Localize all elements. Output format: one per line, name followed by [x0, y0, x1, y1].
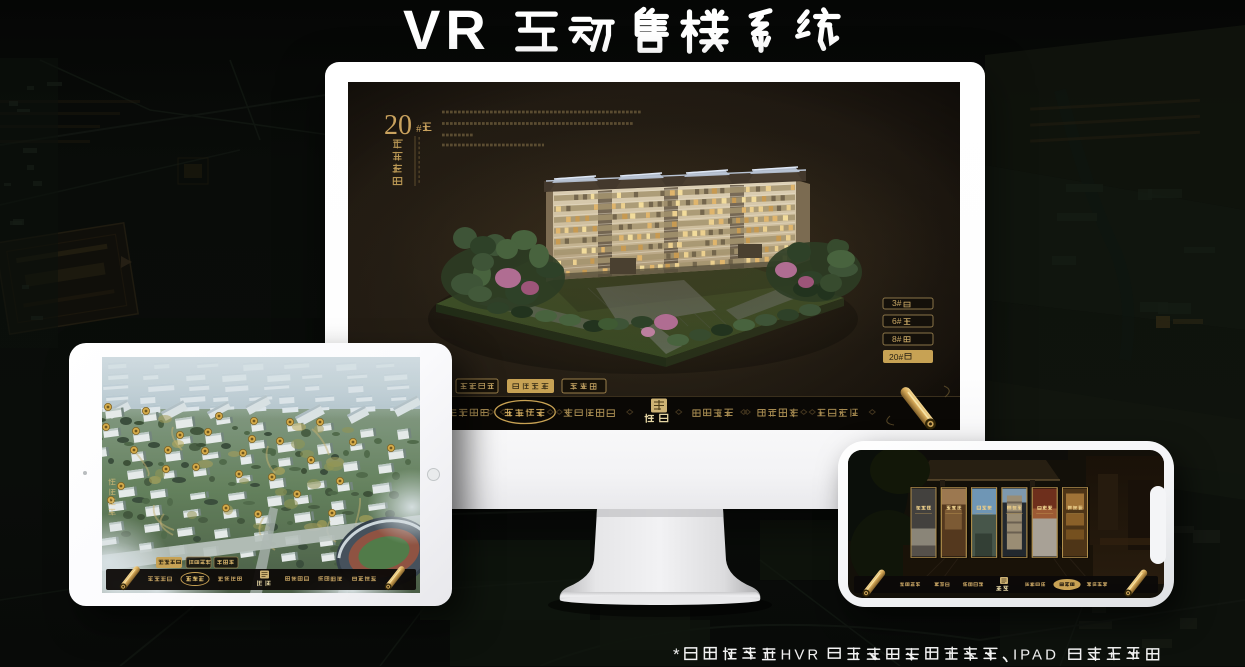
- svg-text:IPAD: IPAD: [1013, 647, 1059, 664]
- svg-text:20#: 20#: [889, 352, 903, 362]
- svg-text:HVR: HVR: [781, 647, 822, 664]
- svg-text:6#: 6#: [892, 316, 902, 326]
- svg-text:8#: 8#: [892, 334, 902, 344]
- svg-text:VR: VR: [403, 2, 491, 60]
- svg-text:*: *: [673, 645, 680, 664]
- svg-text:3#: 3#: [892, 298, 902, 308]
